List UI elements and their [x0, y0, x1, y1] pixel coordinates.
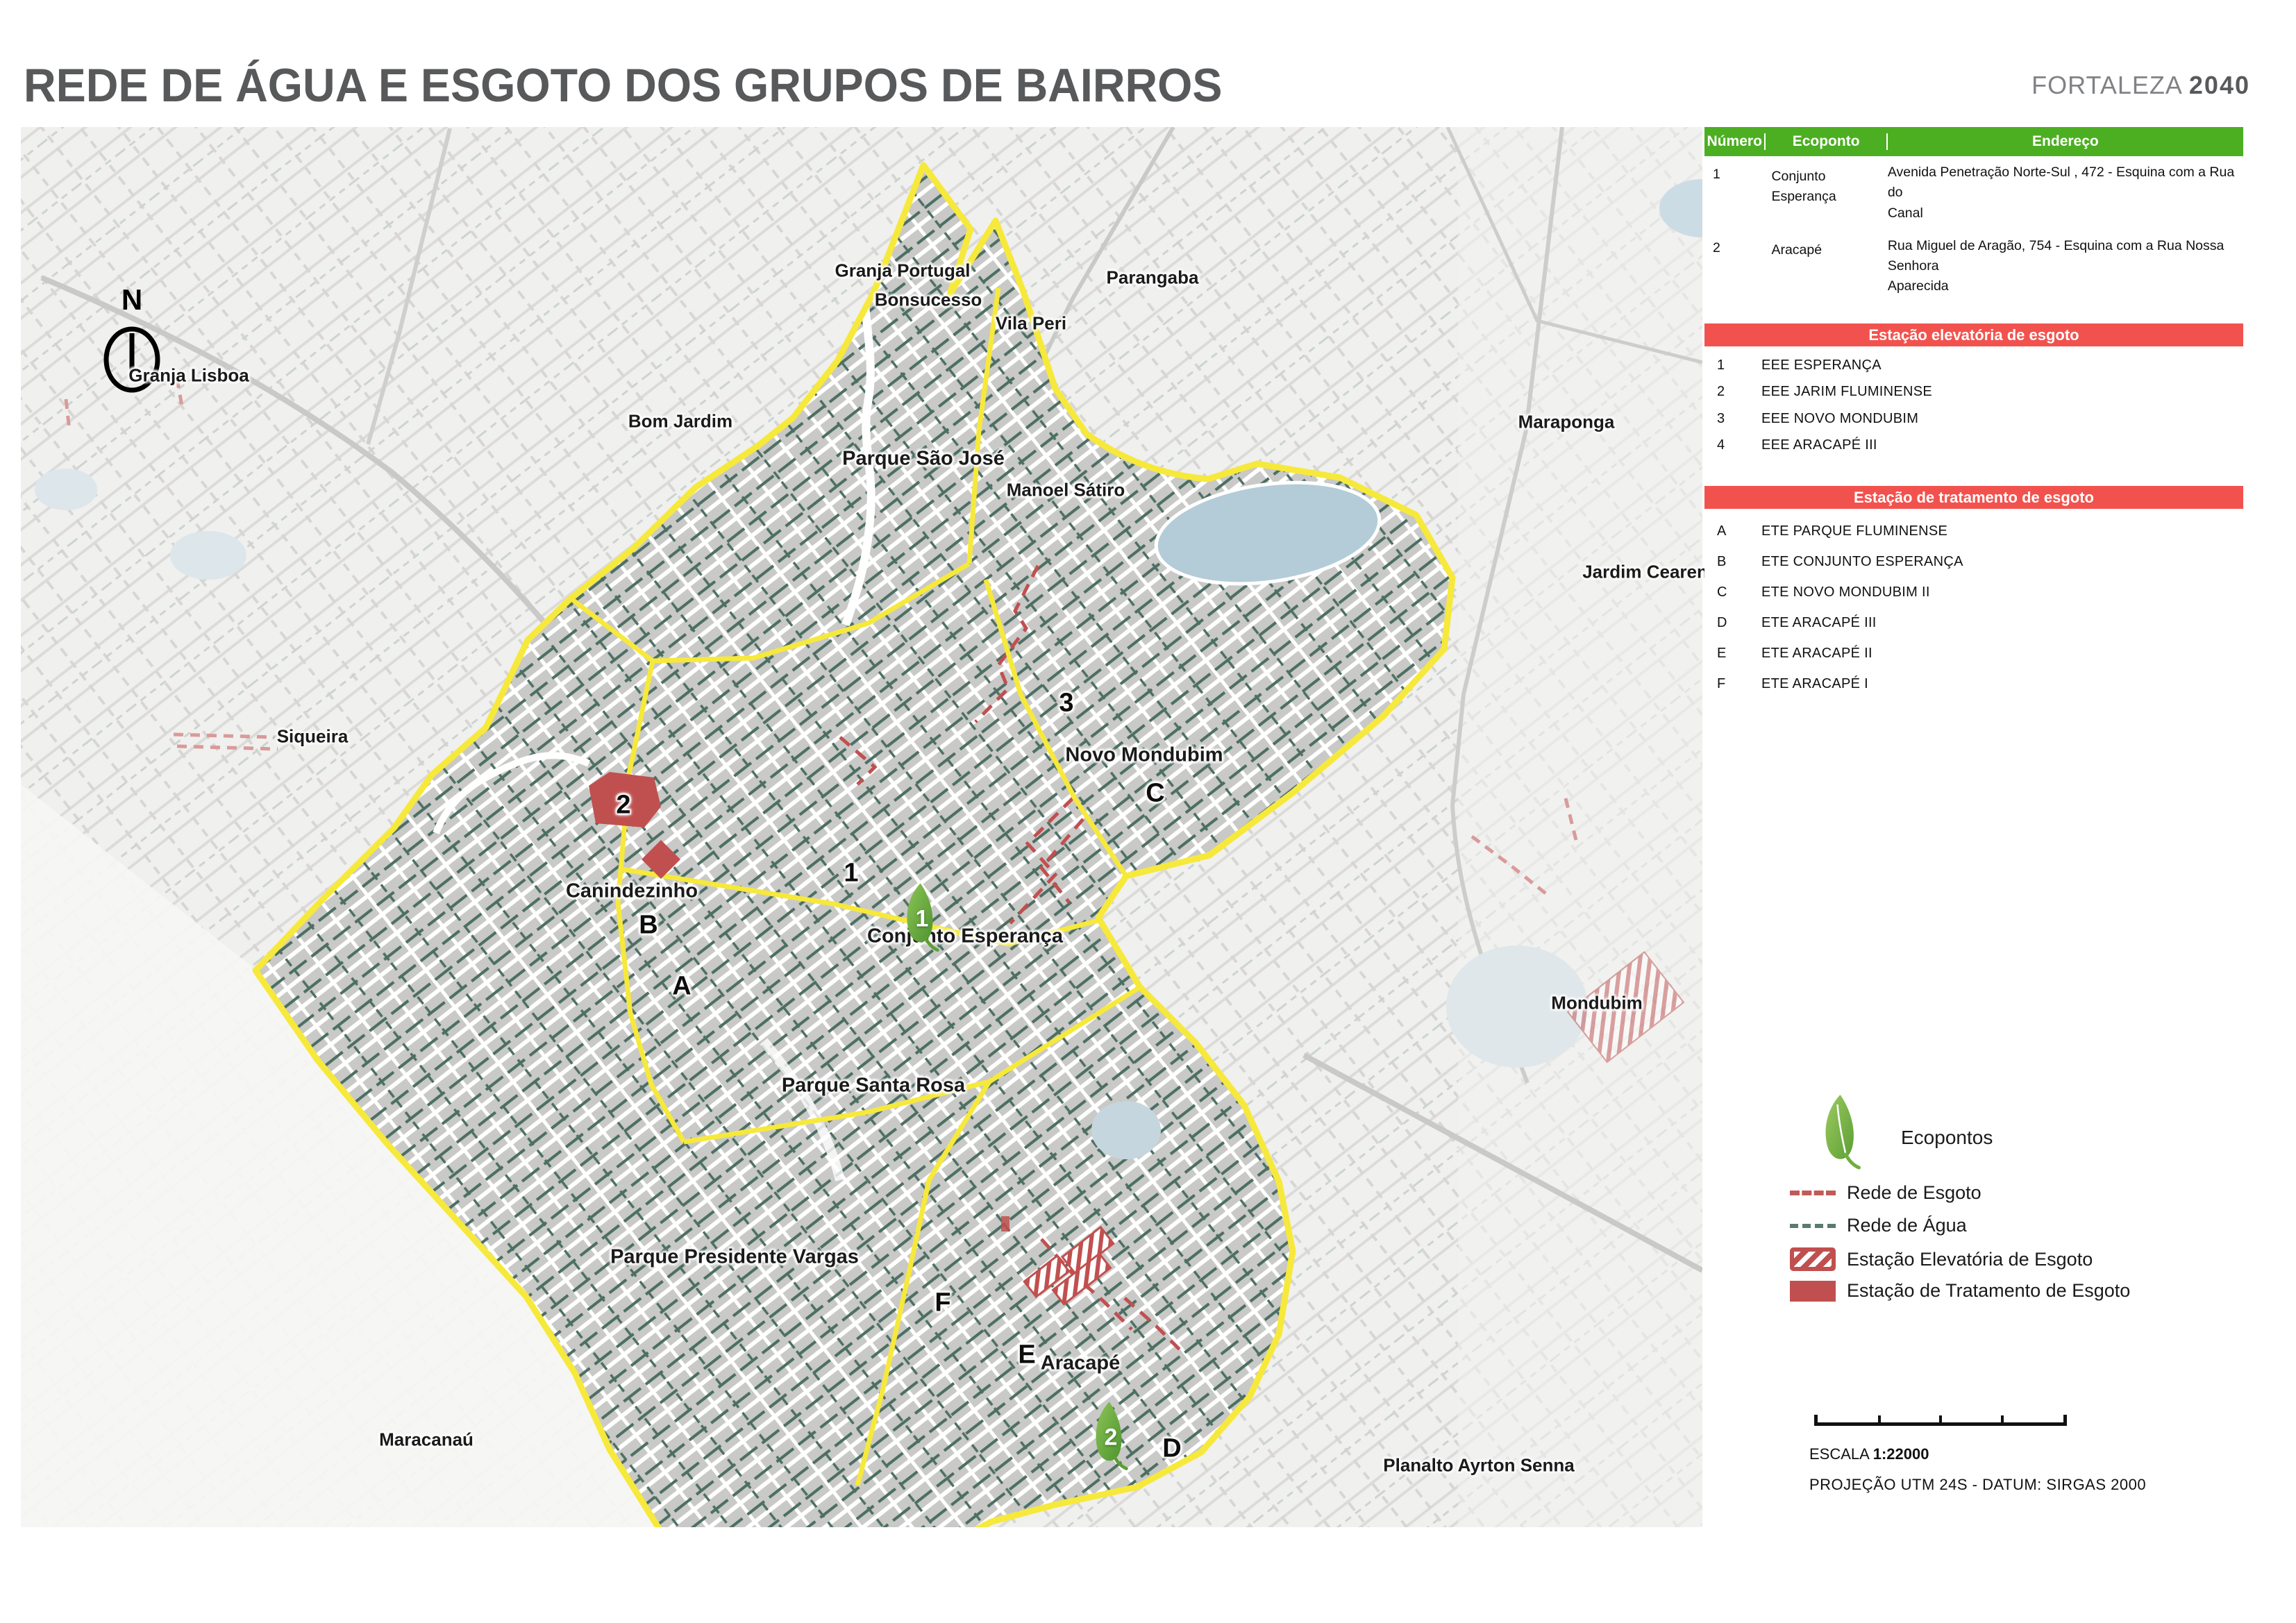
station-id: D [1704, 615, 1761, 631]
station-label: ETE PARQUE FLUMINENSE [1761, 523, 1947, 539]
page-title: REDE DE ÁGUA E ESGOTO DOS GRUPOS DE BAIR… [24, 58, 1223, 112]
legend-item: Rede de Água [1790, 1215, 1967, 1236]
map-place-label: Maraponga [1518, 412, 1615, 433]
ete-table-body: A ETE PARQUE FLUMINENSE B ETE CONJUNTO E… [1704, 509, 2243, 699]
station-table-row[interactable]: A ETE PARQUE FLUMINENSE [1704, 516, 2243, 546]
legend-swatch-icon [1790, 1224, 1836, 1228]
map-place-label: Parangaba [1107, 267, 1199, 289]
ecoponto-leaf-marker[interactable]: 2 [1089, 1401, 1133, 1477]
map-place-label: Granja Lisboa [128, 365, 249, 387]
station-id: E [1704, 646, 1761, 662]
station-table-row[interactable]: 4 EEE ARACAPÉ III [1704, 432, 2243, 460]
eee-table: Estação elevatória de esgoto 1 EEE ESPER… [1704, 323, 2243, 459]
station-id: 3 [1704, 411, 1761, 427]
station-table-row[interactable]: 3 EEE NOVO MONDUBIM [1704, 405, 2243, 432]
col-endereco: Endereço [1888, 133, 2243, 150]
col-ecoponto: Ecoponto [1766, 133, 1887, 150]
station-label: ETE NOVO MONDUBIM II [1761, 585, 1930, 600]
legend-swatch-icon [1790, 1281, 1836, 1302]
map-canvas[interactable]: N Granja LisboaGranja PortugalBonsucesso… [21, 127, 1702, 1527]
brand-name: FORTALEZA [2031, 71, 2181, 99]
scalebar-bar [1814, 1415, 2067, 1426]
escala-label: ESCALA [1809, 1445, 1869, 1463]
cell-ecoponto: Aracapé [1766, 236, 1887, 297]
map-place-label: Bonsucesso [875, 289, 982, 311]
station-marker[interactable]: 2 [616, 791, 630, 821]
ecopontos-table-header: Número Ecoponto Endereço [1704, 127, 2243, 156]
brand-logo: FORTALEZA 2040 [2031, 71, 2250, 100]
station-table-row[interactable]: 2 EEE JARIM FLUMINENSE [1704, 379, 2243, 406]
legend-swatch-icon [1790, 1191, 1836, 1195]
station-id: F [1704, 676, 1761, 692]
station-marker[interactable]: 1 [844, 859, 858, 889]
col-numero: Número [1704, 133, 1766, 150]
leaf-icon [1804, 1093, 1880, 1177]
station-id: 2 [1704, 384, 1761, 400]
station-table-row[interactable]: B ETE CONJUNTO ESPERANÇA [1704, 546, 2243, 577]
map-place-label: Novo Mondubim [1065, 744, 1223, 767]
station-marker[interactable]: F [935, 1288, 950, 1318]
map-place-label: Siqueira [277, 726, 349, 748]
map-place-label: Planalto Ayrton Senna [1383, 1455, 1574, 1477]
legend-item: Rede de Esgoto [1790, 1182, 1981, 1204]
legend-item-label: Rede de Esgoto [1847, 1182, 1981, 1204]
legend-item-label: Estação de Tratamento de Esgoto [1847, 1280, 2130, 1302]
ecoponto-leaf-marker[interactable]: 1 [900, 882, 944, 959]
ecopontos-table-row[interactable]: 1 Conjunto Esperança Avenida Penetração … [1704, 156, 2243, 230]
eee-table-title: Estação elevatória de esgoto [1704, 323, 2243, 346]
legend-item: Estação Elevatória de Esgoto [1790, 1247, 2093, 1271]
map-place-label: Aracapé [1041, 1352, 1120, 1375]
station-label: EEE ARACAPÉ III [1761, 437, 1877, 453]
legend-swatch-icon [1790, 1247, 1836, 1271]
escala-value: 1:22000 [1873, 1445, 1929, 1463]
scalebar-tick-labels [1804, 1387, 2068, 1405]
station-id: C [1704, 585, 1761, 600]
station-marker[interactable]: A [672, 972, 691, 1002]
map-place-label: Conjunto Esperança [867, 925, 1063, 948]
station-label: ETE ARACAPÉ II [1761, 646, 1872, 662]
station-id: 4 [1704, 437, 1761, 453]
cell-endereco: Rua Miguel de Aragão, 754 - Esquina com … [1888, 236, 2243, 297]
legend-item-label: Rede de Água [1847, 1215, 1967, 1236]
map-place-label: Parque São José [842, 448, 1005, 471]
cell-numero: 1 [1704, 162, 1766, 224]
station-marker[interactable]: B [639, 911, 657, 941]
map-place-label: Canindezinho [566, 880, 698, 903]
scale-text: ESCALA 1:22000 [1809, 1445, 1929, 1463]
ecoponto-number: 1 [910, 906, 935, 933]
station-marker[interactable]: 3 [1059, 689, 1073, 718]
cell-numero: 2 [1704, 236, 1766, 297]
ete-table-title: Estação de tratamento de esgoto [1704, 486, 2243, 509]
station-marker[interactable]: C [1146, 779, 1164, 809]
station-label: EEE JARIM FLUMINENSE [1761, 384, 1932, 400]
map-place-label: Mondubim [1551, 993, 1642, 1014]
legend-item: Estação de Tratamento de Esgoto [1790, 1280, 2130, 1302]
station-id: B [1704, 554, 1761, 570]
map-place-label: Granja Portugal [835, 260, 970, 282]
brand-year: 2040 [2189, 71, 2250, 99]
station-table-row[interactable]: 1 EEE ESPERANÇA [1704, 352, 2243, 379]
map-place-label: Maracanaú [379, 1429, 474, 1451]
cell-endereco: Avenida Penetração Norte-Sul , 472 - Esq… [1888, 162, 2243, 224]
ecopontos-table-body: 1 Conjunto Esperança Avenida Penetração … [1704, 156, 2243, 303]
map-place-label: Bom Jardim [628, 411, 732, 432]
station-label: ETE ARACAPÉ I [1761, 676, 1868, 692]
cell-ecoponto: Conjunto Esperança [1766, 162, 1887, 224]
station-label: EEE ESPERANÇA [1761, 358, 1882, 373]
station-marker[interactable]: E [1018, 1340, 1035, 1370]
ecopontos-table: Número Ecoponto Endereço 1 Conjunto Espe… [1704, 127, 2243, 303]
station-marker[interactable]: D [1162, 1434, 1181, 1464]
station-label: ETE CONJUNTO ESPERANÇA [1761, 554, 1963, 570]
north-letter: N [121, 283, 142, 317]
legend-item-label: Estação Elevatória de Esgoto [1847, 1249, 2093, 1270]
legend-ecopontos: Ecopontos [1804, 1093, 1984, 1177]
legend-ecopontos-label: Ecopontos [1901, 1127, 1993, 1149]
station-table-row[interactable]: E ETE ARACAPÉ II [1704, 638, 2243, 668]
station-table-row[interactable]: D ETE ARACAPÉ III [1704, 607, 2243, 638]
station-label: ETE ARACAPÉ III [1761, 615, 1877, 631]
eee-table-body: 1 EEE ESPERANÇA 2 EEE JARIM FLUMINENSE 3… [1704, 346, 2243, 459]
station-label: EEE NOVO MONDUBIM [1761, 411, 1918, 427]
station-id: A [1704, 523, 1761, 539]
ecopontos-table-row[interactable]: 2 Aracapé Rua Miguel de Aragão, 754 - Es… [1704, 230, 2243, 303]
map-place-label: Manoel Sátiro [1007, 480, 1125, 501]
map-place-label: Vila Peri [996, 313, 1066, 335]
projection-text: PROJEÇÃO UTM 24S - DATUM: SIRGAS 2000 [1809, 1476, 2146, 1494]
ecoponto-number: 2 [1098, 1424, 1123, 1452]
station-id: 1 [1704, 358, 1761, 373]
station-table-row[interactable]: C ETE NOVO MONDUBIM II [1704, 577, 2243, 607]
ete-table: Estação de tratamento de esgoto A ETE PA… [1704, 486, 2243, 699]
map-place-label: Parque Presidente Vargas [610, 1246, 859, 1269]
map-place-label: Parque Santa Rosa [782, 1075, 965, 1098]
station-table-row[interactable]: F ETE ARACAPÉ I [1704, 668, 2243, 699]
